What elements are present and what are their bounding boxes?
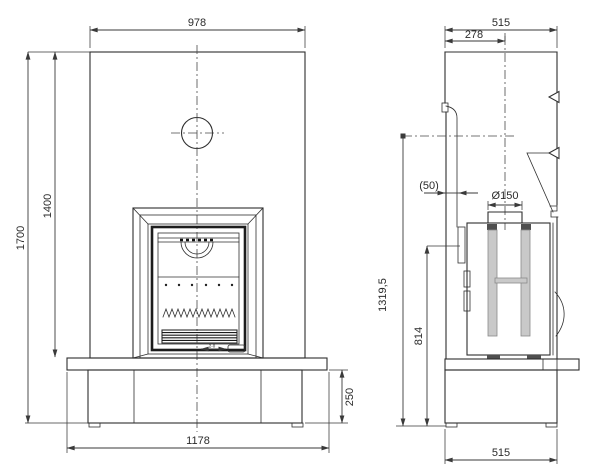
stove-foot-back [527,355,541,359]
top-plate-cut-left [487,224,497,230]
dim-label-clearance: (50) [419,180,439,192]
technical-drawing-page: 2-0 978 1700 1400 250 1178 [0,0,600,474]
stove-foot-front [487,355,500,359]
dim-label-body-height: 814 [413,327,425,345]
air-hole [205,284,207,286]
air-hole [178,284,180,286]
dim-label-height-total: 1700 [15,226,27,250]
air-hole [165,284,167,286]
dim-label-base-height: 250 [344,388,356,406]
dim-anchor-1319 [401,134,406,139]
dim-label-door-detail: 2-0 [209,344,216,349]
dim-label-base-depth: 515 [492,447,510,459]
air-hole [231,284,233,286]
dim-label-height-opening: 1400 [42,194,54,218]
dim-label-flue-height: 1319,5 [377,278,389,312]
dim-label-flue-diameter: Ø150 [492,190,519,202]
top-plate-cut-right [521,224,531,230]
dim-label-width-top: 978 [188,17,206,29]
fireplace-dimension-drawing: 2-0 978 1700 1400 250 1178 [0,0,600,474]
dim-label-base-width: 1178 [186,435,210,447]
dim-label-flue-offset: 278 [465,29,483,41]
dim-label-depth-top: 515 [492,17,510,29]
air-hole [191,284,193,286]
internal-cross-bar [495,278,527,283]
air-hole [218,284,220,286]
